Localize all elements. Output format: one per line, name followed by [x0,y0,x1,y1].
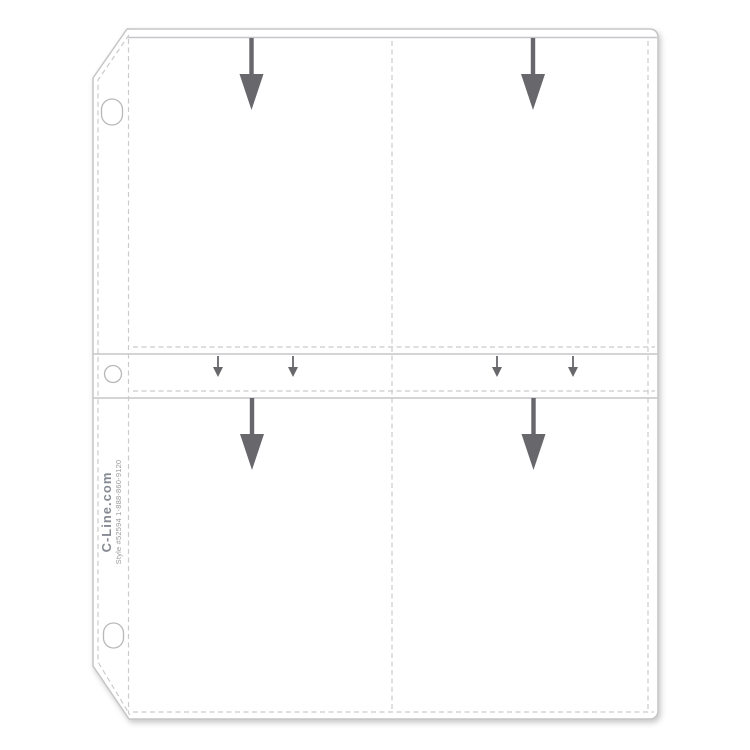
sheet-protector-artwork [0,0,750,750]
binder-hole-middle [105,366,122,383]
product-image: C-Line.com Style #52594 1-888-860-9120 [0,0,750,750]
edge-imprint: C-Line.com Style #52594 1-888-860-9120 [100,447,126,577]
binder-hole-bottom [104,623,124,648]
brand-text: C-Line.com [100,447,113,577]
style-number-text: Style #52594 1-888-860-9120 [115,447,123,577]
binder-hole-top [102,99,123,125]
